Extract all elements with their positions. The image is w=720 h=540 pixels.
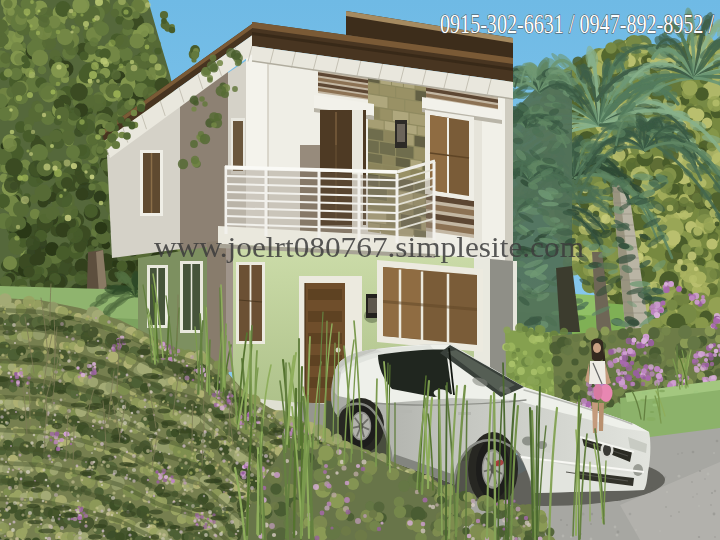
svg-text:0915-302-6631 / 0947-892-8952: 0915-302-6631 / 0947-892-8952 / [440,9,714,39]
svg-text:www.joelrt080767.simplesite.co: www.joelrt080767.simplesite.com [154,230,584,263]
